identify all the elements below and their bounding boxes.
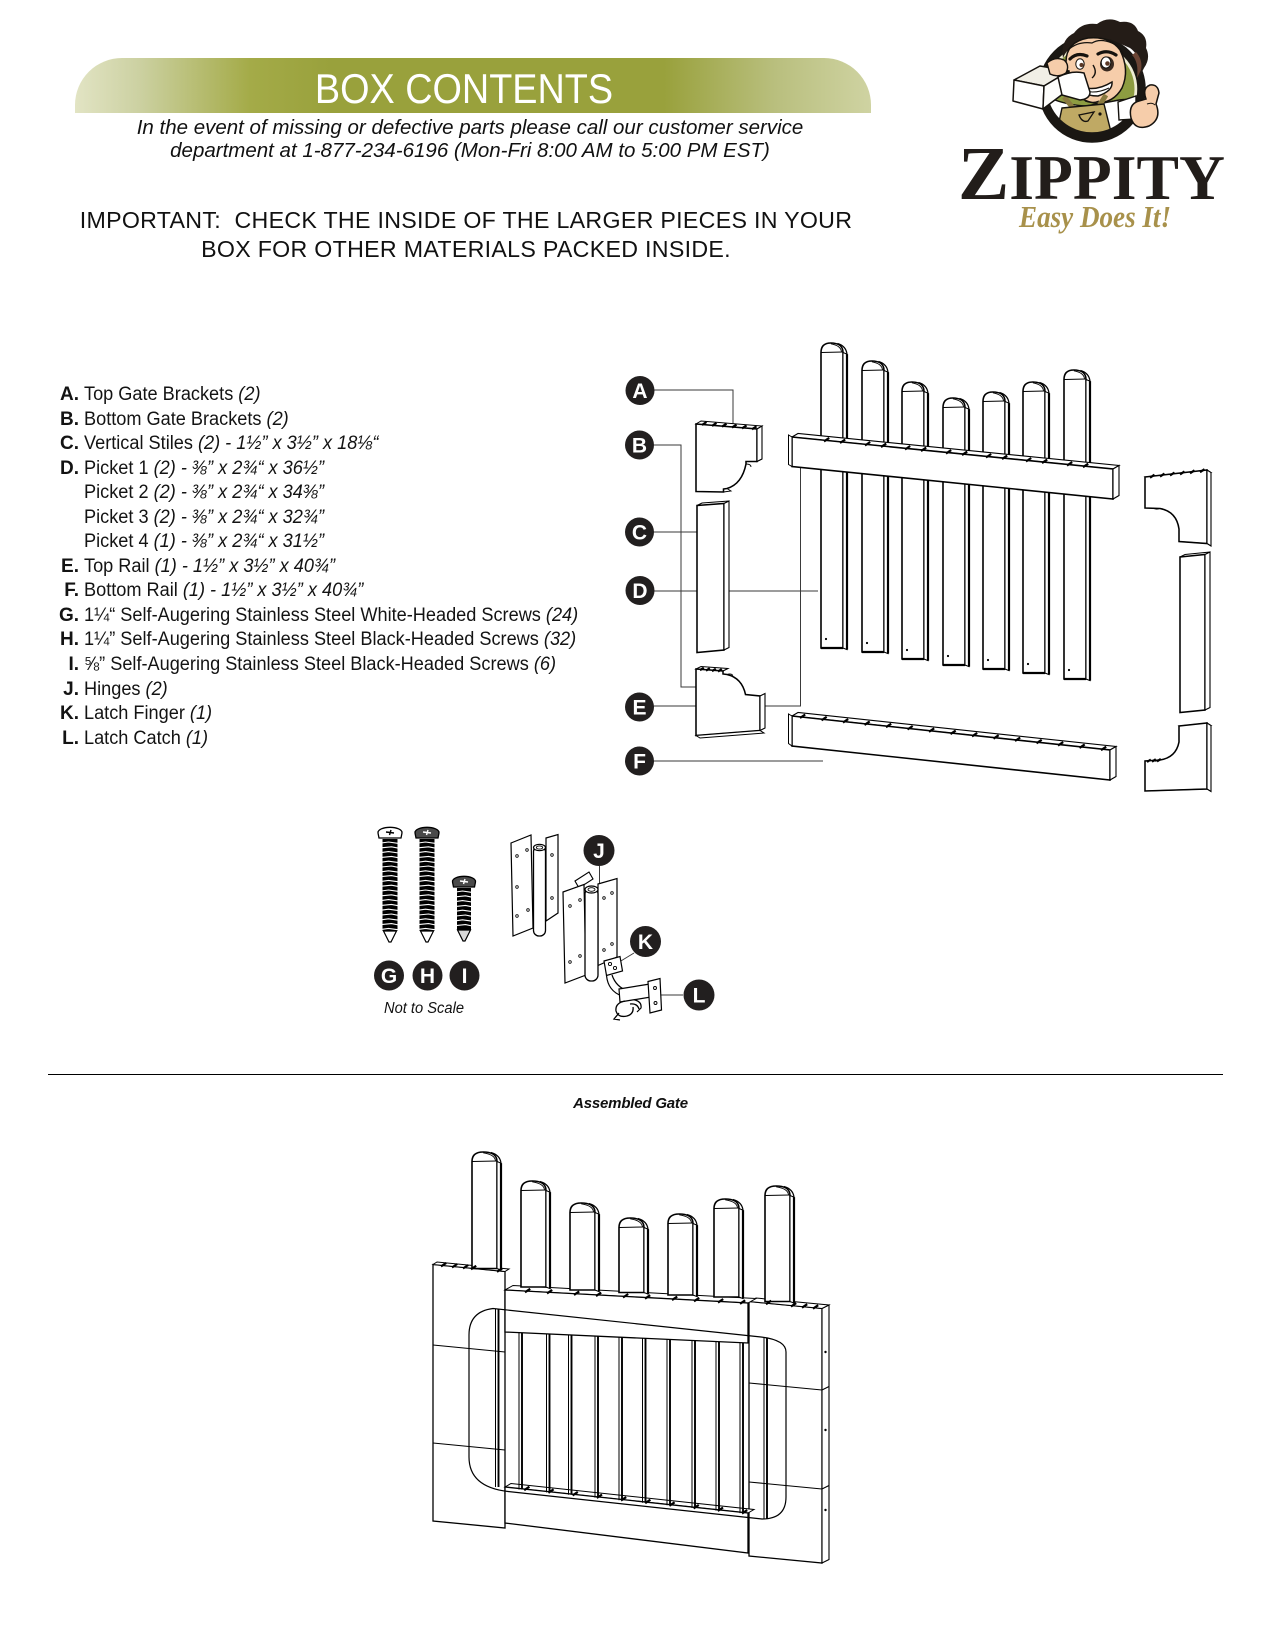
svg-text:G: G (381, 965, 397, 988)
svg-text:I: I (462, 965, 468, 988)
svg-text:D: D (632, 580, 647, 603)
svg-text:J: J (593, 840, 605, 863)
svg-text:Easy Does It!: Easy Does It! (1018, 199, 1171, 234)
svg-text:L: L (693, 985, 706, 1008)
svg-text:F: F (633, 751, 646, 774)
svg-text:C: C (632, 522, 647, 545)
svg-text:A: A (632, 380, 647, 403)
svg-text:E: E (632, 697, 646, 720)
svg-text:B: B (632, 435, 647, 458)
svg-text:H: H (420, 965, 435, 988)
svg-text:Not to Scale: Not to Scale (384, 1000, 464, 1017)
svg-text:K: K (638, 931, 653, 954)
